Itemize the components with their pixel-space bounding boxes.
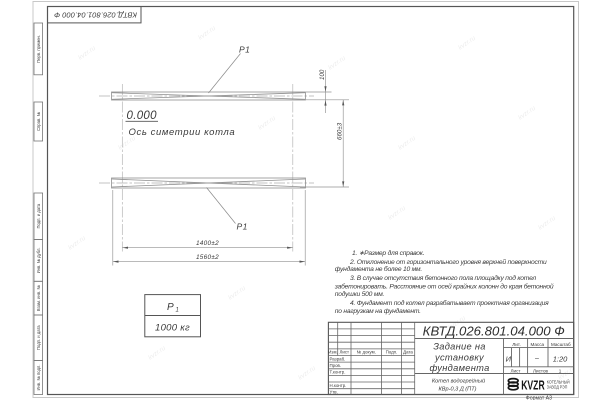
- svg-text:Подп. и дата: Подп. и дата: [36, 203, 41, 228]
- svg-text:Р1: Р1: [239, 45, 250, 55]
- svg-text:Взам. инв. №: Взам. инв. №: [36, 285, 41, 311]
- svg-text:4. Фундамент под котел разраба: 4. Фундамент под котел разрабатывает про…: [350, 299, 549, 307]
- svg-text:Утв.: Утв.: [330, 390, 338, 395]
- svg-text:Задание на: Задание на: [433, 342, 486, 352]
- svg-text:Инв. № дубл.: Инв. № дубл.: [36, 247, 41, 273]
- svg-text:Пров.: Пров.: [330, 363, 342, 368]
- svg-text:забетонировать. Расстояние от: забетонировать. Расстояние от осей крайн…: [334, 282, 554, 290]
- svg-text:Дата: Дата: [403, 350, 413, 355]
- svg-text:Ось симетрии котла: Ось симетрии котла: [129, 127, 236, 138]
- svg-text:фундамента не более 10 мм.: фундамента не более 10 мм.: [335, 265, 423, 273]
- svg-text:1. ∗Размер для справок.: 1. ∗Размер для справок.: [352, 249, 425, 257]
- svg-text:подушки 500 мм.: подушки 500 мм.: [335, 290, 385, 298]
- svg-text:KVZR: KVZR: [521, 378, 545, 392]
- svg-text:1400±2: 1400±2: [196, 240, 219, 247]
- svg-text:Масса: Масса: [531, 342, 545, 347]
- svg-text:Разраб.: Разраб.: [330, 356, 346, 361]
- svg-text:1:20: 1:20: [553, 355, 568, 364]
- svg-text:0.000: 0.000: [127, 110, 158, 122]
- svg-text:660±3: 660±3: [337, 122, 344, 140]
- svg-text:Формат А3: Формат А3: [526, 395, 552, 400]
- svg-text:Лист: Лист: [511, 368, 522, 373]
- svg-text:Листов: Листов: [533, 368, 548, 373]
- svg-text:№ докум.: № докум.: [357, 350, 376, 355]
- svg-text:Лист: Лист: [340, 350, 350, 355]
- svg-text:Инв. № подл.: Инв. № подл.: [36, 364, 41, 390]
- svg-text:1560±2: 1560±2: [196, 254, 219, 261]
- svg-text:И: И: [506, 354, 512, 363]
- svg-text:Котел водогрейный: Котел водогрейный: [432, 378, 485, 385]
- svg-text:Перв. примен.: Перв. примен.: [36, 35, 41, 63]
- svg-text:Лит.: Лит.: [512, 342, 521, 347]
- svg-text:Т.контр.: Т.контр.: [330, 370, 346, 375]
- svg-text:ЗАВОД РЭП: ЗАВОД РЭП: [547, 384, 568, 389]
- svg-text:Р: Р: [167, 302, 174, 313]
- svg-text:КВТД.026.801.04.000 Ф: КВТД.026.801.04.000 Ф: [54, 11, 137, 20]
- svg-text:100: 100: [319, 69, 326, 80]
- svg-text:1: 1: [559, 368, 562, 373]
- svg-text:Подп. и дата: Подп. и дата: [36, 325, 41, 350]
- svg-text:Изм.: Изм.: [328, 350, 337, 355]
- svg-text:1000 кг: 1000 кг: [155, 323, 190, 334]
- svg-text:КВТД.026.801.04.000 Ф: КВТД.026.801.04.000 Ф: [423, 323, 565, 338]
- svg-text:Р1: Р1: [237, 222, 248, 232]
- svg-text:по нагрузкам на фундамент.: по нагрузкам на фундамент.: [335, 307, 421, 315]
- svg-text:Н.контр.: Н.контр.: [330, 383, 347, 388]
- svg-text:установку: установку: [434, 352, 485, 362]
- svg-text:фундамента: фундамента: [429, 363, 489, 373]
- svg-text:Масштаб: Масштаб: [551, 342, 571, 347]
- svg-text:Справ. №: Справ. №: [36, 111, 41, 131]
- svg-text:–: –: [534, 355, 539, 362]
- svg-text:Подп.: Подп.: [386, 350, 398, 355]
- svg-text:КВр-0,3 Д (ПТ): КВр-0,3 Д (ПТ): [438, 387, 476, 393]
- svg-text:2. Отклонение от горизонтально: 2. Отклонение от горизонтального уровня …: [349, 258, 547, 266]
- svg-text:1: 1: [176, 308, 179, 314]
- svg-text:3. В случае отсутствия бетонно: 3. В случае отсутствия бетонного пола пл…: [350, 274, 536, 282]
